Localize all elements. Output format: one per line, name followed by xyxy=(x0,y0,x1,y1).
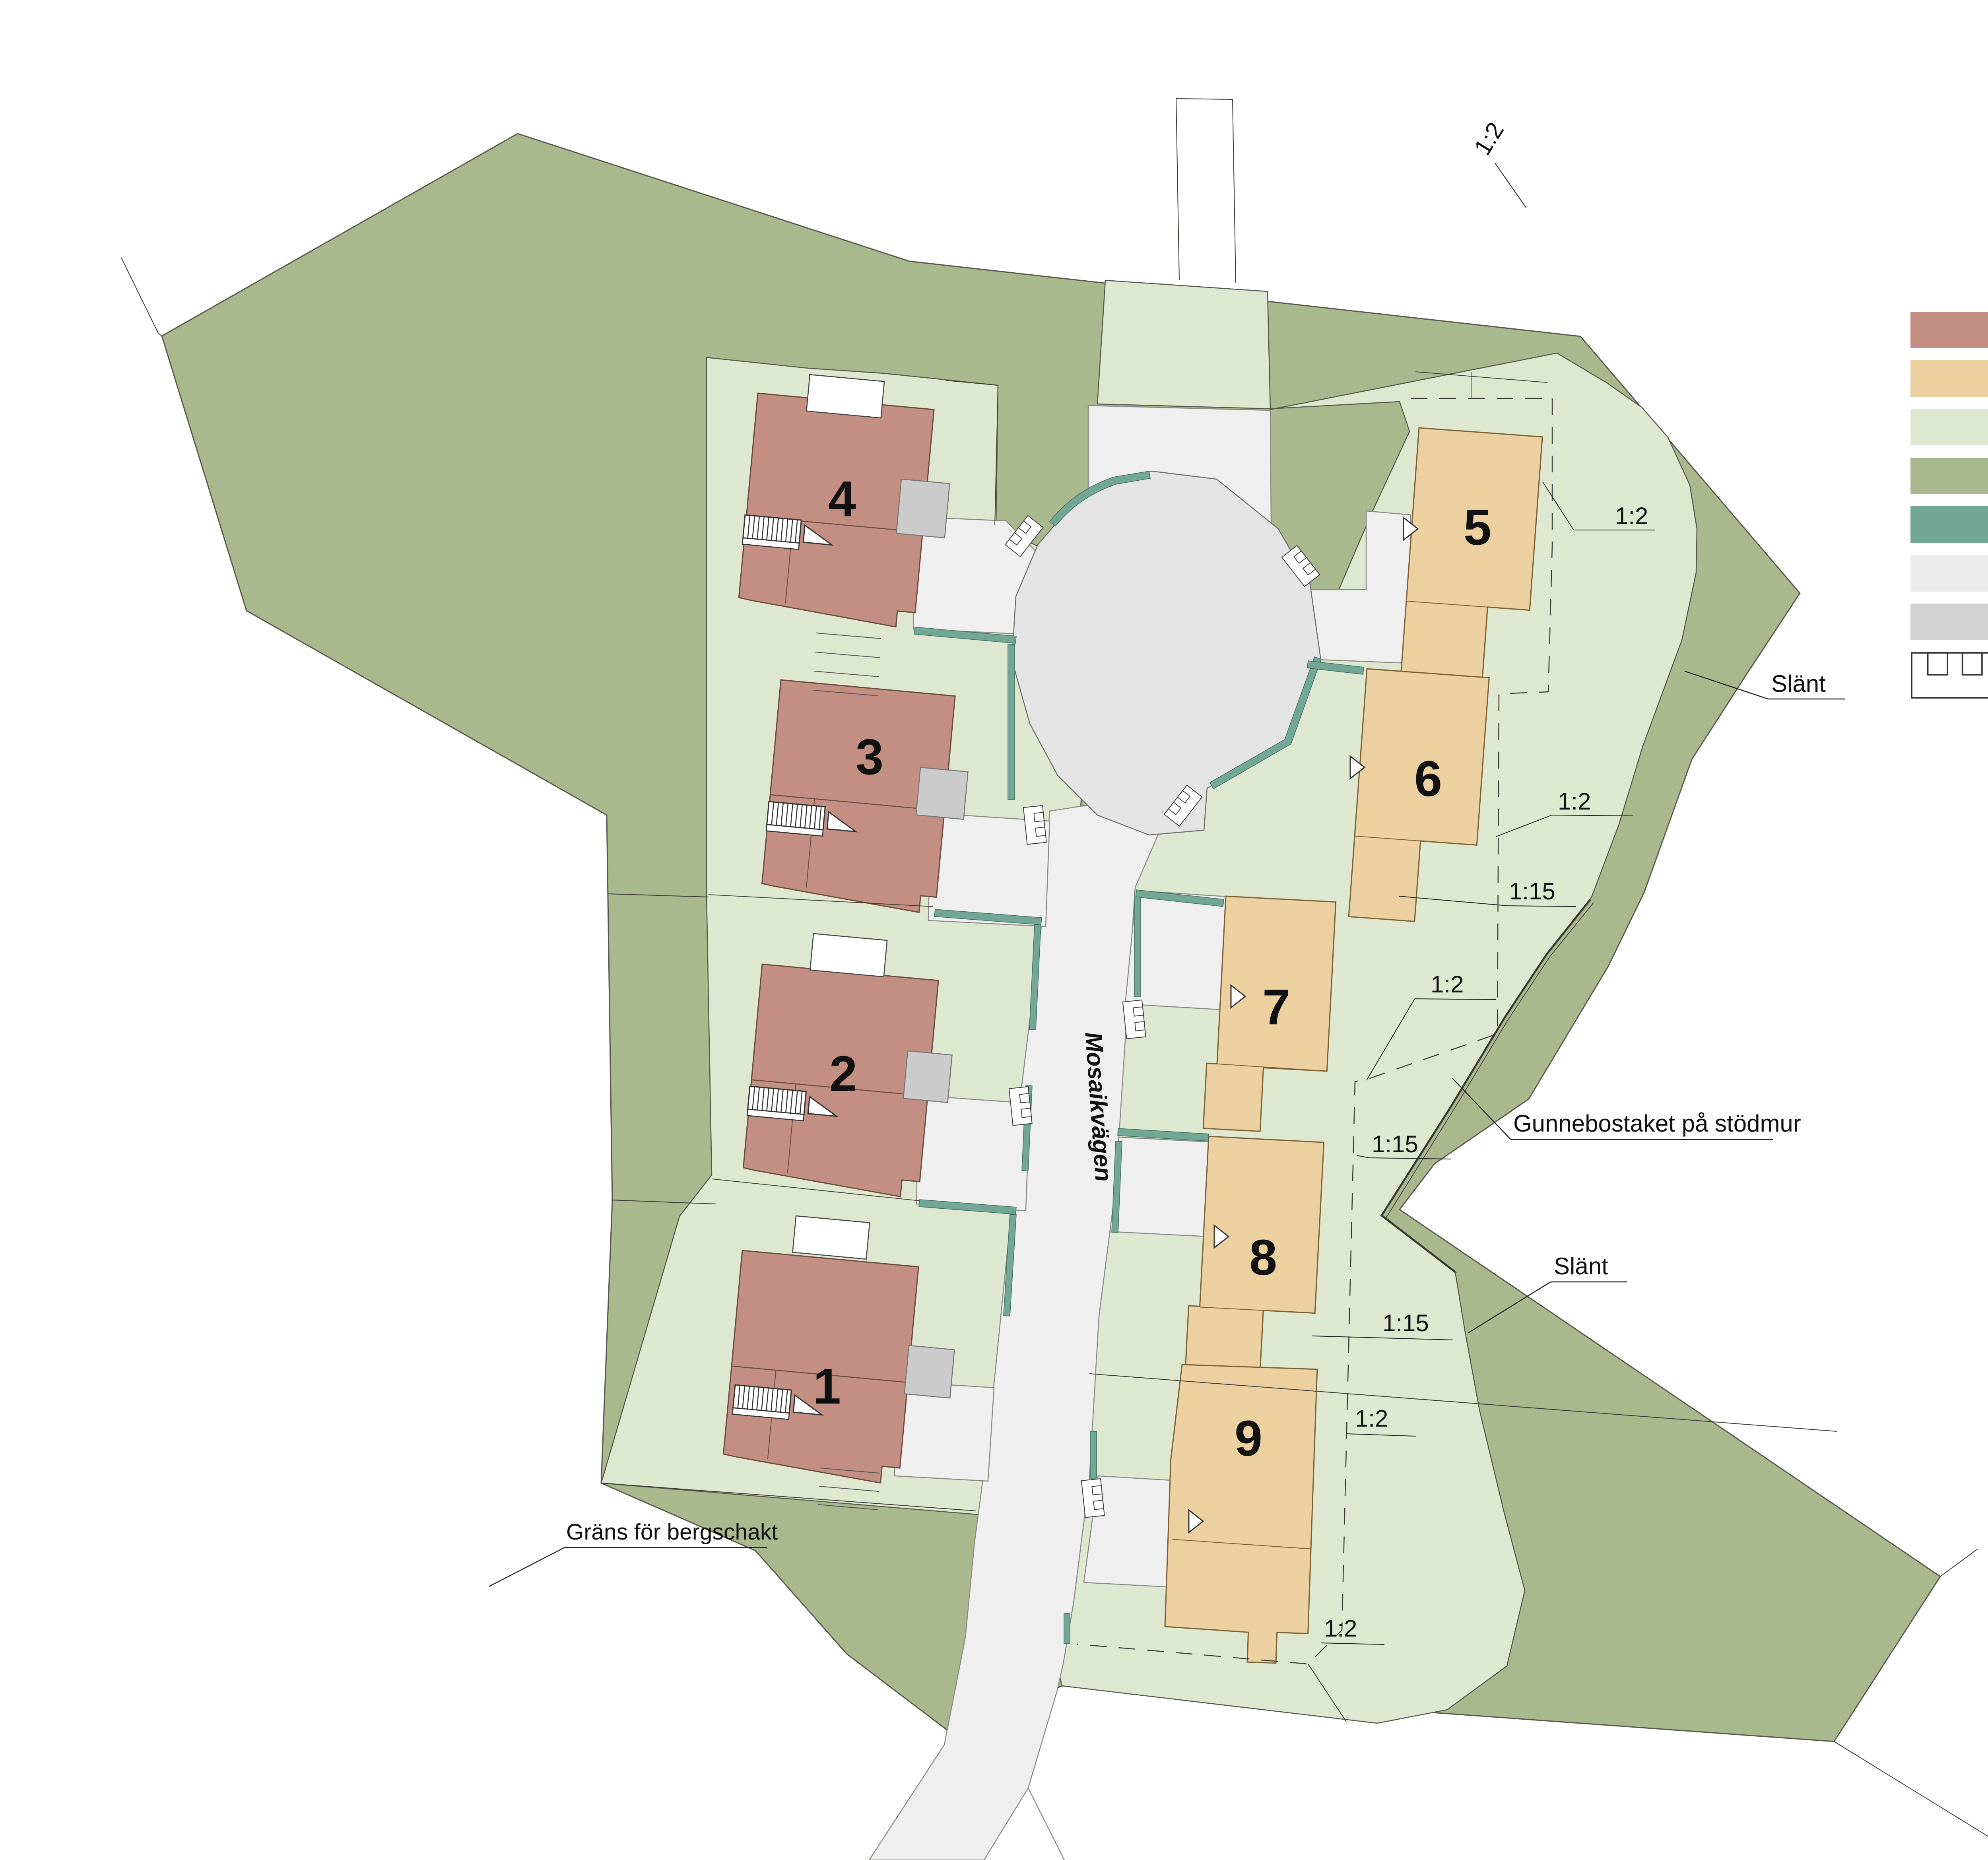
svg-text:Gunnebostaket på stödmur: Gunnebostaket på stödmur xyxy=(1513,1110,1801,1137)
svg-text:1:2: 1:2 xyxy=(1431,971,1464,998)
svg-text:1:15: 1:15 xyxy=(1382,1310,1429,1336)
svg-text:1:2: 1:2 xyxy=(1615,503,1648,529)
svg-text:Slänt: Slänt xyxy=(1771,670,1826,697)
svg-text:1:2: 1:2 xyxy=(1324,1615,1357,1642)
svg-text:Gräns för bergschakt: Gräns för bergschakt xyxy=(566,1519,778,1545)
svg-text:5: 5 xyxy=(1464,499,1491,555)
svg-text:1:2: 1:2 xyxy=(1558,788,1591,815)
svg-text:1:2: 1:2 xyxy=(1355,1405,1388,1432)
svg-text:1: 1 xyxy=(813,1358,841,1414)
svg-text:6: 6 xyxy=(1414,751,1442,807)
svg-text:4: 4 xyxy=(828,471,856,527)
svg-text:9: 9 xyxy=(1235,1410,1262,1466)
svg-text:8: 8 xyxy=(1249,1229,1277,1285)
svg-text:2: 2 xyxy=(829,1046,857,1102)
svg-text:7: 7 xyxy=(1262,979,1290,1035)
svg-text:Slänt: Slänt xyxy=(1554,1253,1608,1279)
svg-text:1:15: 1:15 xyxy=(1509,878,1555,905)
svg-text:3: 3 xyxy=(856,729,883,785)
svg-text:1:15: 1:15 xyxy=(1372,1131,1418,1157)
